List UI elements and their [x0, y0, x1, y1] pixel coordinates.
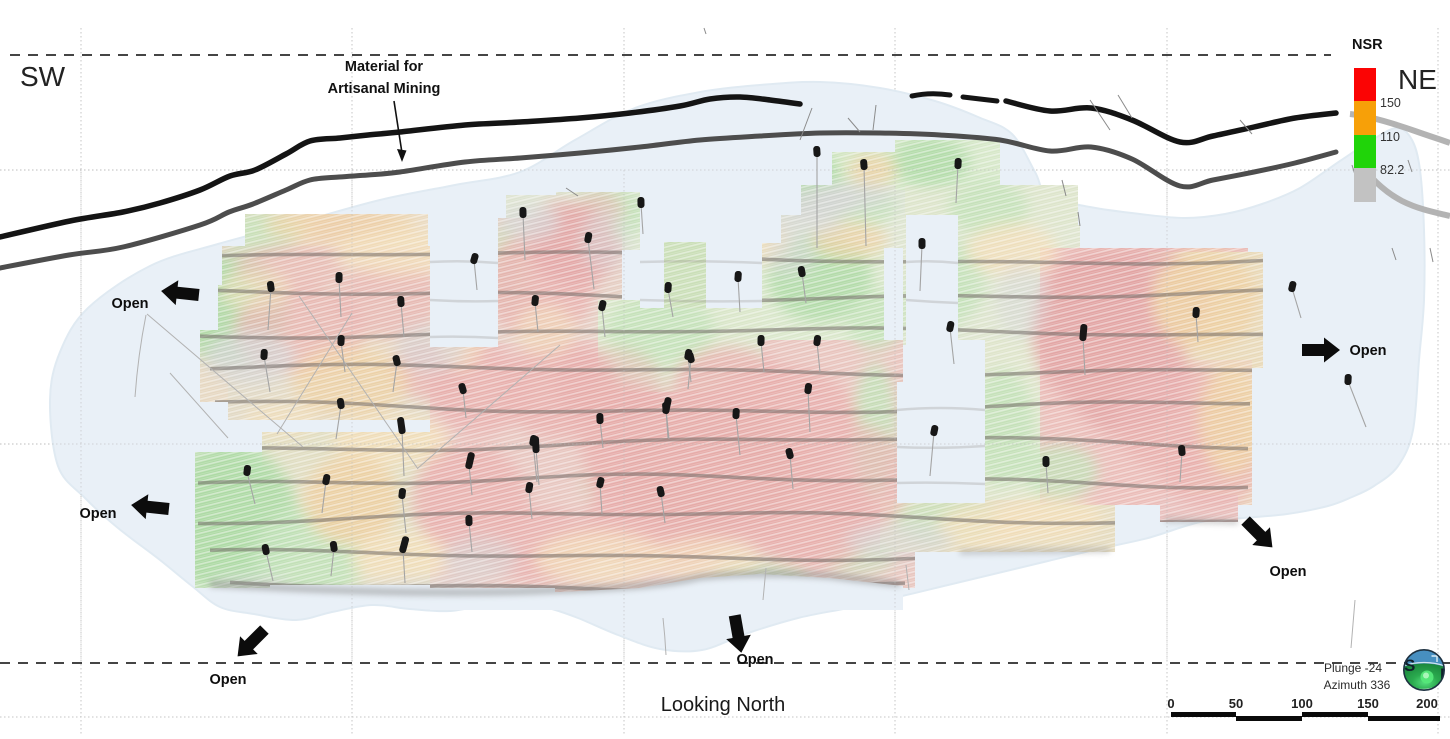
- svg-text:Open: Open: [736, 652, 773, 668]
- svg-text:NE: NE: [1398, 64, 1437, 95]
- svg-text:Looking North: Looking North: [661, 694, 786, 716]
- svg-text:NSR: NSR: [1352, 37, 1383, 53]
- svg-text:Open: Open: [1349, 343, 1386, 359]
- svg-text:Plunge -24: Plunge -24: [1324, 661, 1382, 675]
- svg-text:Open: Open: [1269, 564, 1306, 580]
- svg-text:Material for: Material for: [345, 59, 424, 75]
- svg-text:Open: Open: [209, 672, 246, 688]
- svg-text:SW: SW: [20, 61, 66, 92]
- svg-text:50: 50: [1229, 696, 1243, 711]
- svg-text:0: 0: [1167, 696, 1174, 711]
- svg-text:200: 200: [1416, 696, 1438, 711]
- svg-text:150: 150: [1380, 96, 1401, 110]
- svg-text:Open: Open: [111, 296, 148, 312]
- svg-text:82.2: 82.2: [1380, 163, 1404, 177]
- svg-text:Azimuth 336: Azimuth 336: [1324, 678, 1391, 692]
- svg-text:Artisanal Mining: Artisanal Mining: [328, 81, 441, 97]
- svg-text:Open: Open: [79, 506, 116, 522]
- svg-text:110: 110: [1380, 130, 1400, 144]
- svg-text:150: 150: [1357, 696, 1379, 711]
- svg-text:100: 100: [1291, 696, 1313, 711]
